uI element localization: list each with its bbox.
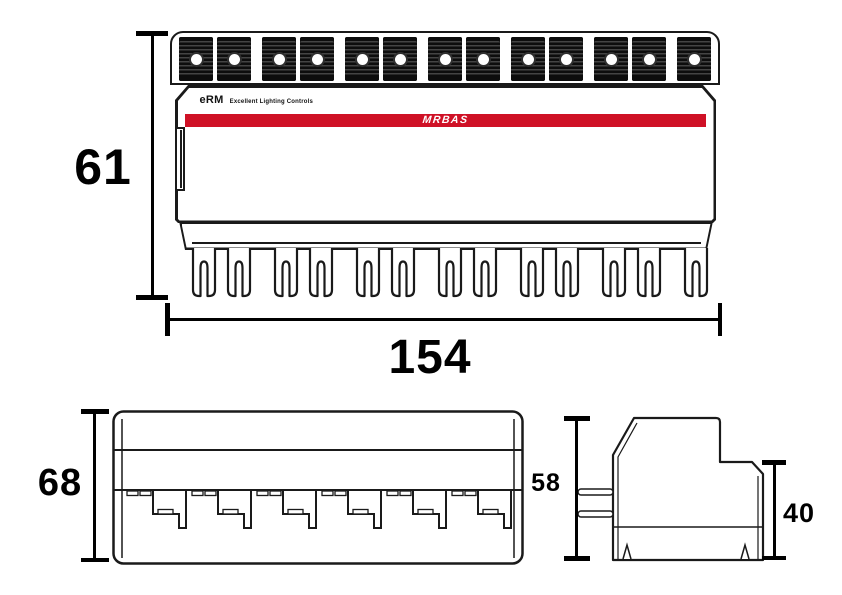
step-tab (127, 491, 138, 496)
dim-cap (165, 303, 170, 336)
terminal-block (677, 37, 711, 81)
lower-skirt-edge-line (192, 242, 701, 244)
fork-terminal-shape (193, 248, 215, 296)
terminal-block (262, 37, 296, 81)
fork-terminal-shape (310, 248, 332, 296)
dim-cap (718, 303, 723, 336)
fork-terminal (437, 248, 463, 298)
fork-terminal-shape (521, 248, 543, 296)
terminal-block (511, 37, 545, 81)
dim-cap (136, 295, 168, 300)
step-tab (192, 491, 203, 496)
dim-cap (564, 416, 590, 421)
dim-cap (762, 460, 786, 465)
screw-hole-icon (523, 54, 534, 65)
dim-cap (81, 409, 109, 414)
step-shelf-tab (353, 510, 368, 515)
step-tab (140, 491, 151, 496)
fork-terminal-shape (392, 248, 414, 296)
front-panel-face: eRM Excellent Lighting Controls MRBAS (178, 88, 714, 221)
connector-pin (578, 489, 613, 495)
fork-terminal (683, 248, 709, 298)
terminal-block (383, 37, 417, 81)
terminal-block (217, 37, 251, 81)
fork-terminal (519, 248, 545, 298)
fork-terminal (226, 248, 252, 298)
dim-cap (81, 558, 109, 563)
fork-terminal (390, 248, 416, 298)
dim-value-front-height: 61 (63, 142, 143, 192)
screw-hole-icon (274, 54, 285, 65)
screw-hole-icon (229, 54, 240, 65)
side-view-outline (613, 418, 763, 560)
fork-terminal (472, 248, 498, 298)
dim-cap (136, 31, 168, 36)
step-shelf-tab (158, 510, 173, 515)
terminal-block (345, 37, 379, 81)
screw-hole-icon (689, 54, 700, 65)
logo-text: MRBAS (184, 114, 706, 127)
fork-terminal (636, 248, 662, 298)
step-tab (465, 491, 476, 496)
step-tab (270, 491, 281, 496)
bottom-view-outline (114, 412, 523, 564)
brand-label: eRM (200, 94, 224, 106)
terminal-block (179, 37, 213, 81)
fork-terminal (554, 248, 580, 298)
dim-value-side-height: 58 (516, 471, 576, 496)
screw-hole-icon (644, 54, 655, 65)
step-tab (452, 491, 463, 496)
connector-pins (578, 489, 613, 517)
fork-terminal-shape (556, 248, 578, 296)
terminal-block (549, 37, 583, 81)
dim-line-vertical (151, 33, 154, 297)
fork-terminal-shape (228, 248, 250, 296)
fork-terminal (273, 248, 299, 298)
screw-hole-icon (357, 54, 368, 65)
side-view (576, 412, 771, 564)
step-tab (335, 491, 346, 496)
terminal-block (300, 37, 334, 81)
step-shelf-tab (483, 510, 498, 515)
fork-terminal (191, 248, 217, 298)
fork-terminal (601, 248, 627, 298)
brand-stripe: MRBAS (185, 114, 706, 127)
step-tab (257, 491, 268, 496)
lower-skirt (179, 221, 713, 250)
terminal-block (594, 37, 628, 81)
din-clip-slot-edge (180, 130, 182, 188)
connector-pin (578, 511, 613, 517)
lower-skirt-face (182, 224, 711, 248)
front-panel: eRM Excellent Lighting Controls MRBAS (175, 85, 716, 223)
step-tab (322, 491, 333, 496)
screw-hole-icon (395, 54, 406, 65)
fork-terminal-shape (474, 248, 496, 296)
brand-row: eRM Excellent Lighting Controls (200, 94, 314, 106)
step-tab (400, 491, 411, 496)
fork-terminal (308, 248, 334, 298)
terminal-block (632, 37, 666, 81)
step-tab (387, 491, 398, 496)
fork-terminal-shape (357, 248, 379, 296)
din-clip-slot (175, 127, 185, 191)
fork-terminal-shape (603, 248, 625, 296)
screw-hole-icon (478, 54, 489, 65)
fork-terminal-shape (638, 248, 660, 296)
dim-line-horizontal (166, 318, 720, 322)
fork-terminal-shape (275, 248, 297, 296)
dim-cap (564, 556, 590, 561)
dimension-drawing: eRM Excellent Lighting Controls MRBAS 61 (0, 0, 842, 595)
fork-terminal (355, 248, 381, 298)
step-shelf-tab (418, 510, 433, 515)
terminal-blocks-row (179, 37, 713, 81)
terminal-block (428, 37, 462, 81)
dim-value-side-step-height: 40 (769, 500, 829, 527)
dim-value-bottom-height: 68 (20, 464, 100, 502)
fork-terminal-shape (439, 248, 461, 296)
step-shelf-tab (288, 510, 303, 515)
fork-terminal-shape (685, 248, 707, 296)
dim-cap (762, 556, 786, 561)
terminal-block (466, 37, 500, 81)
fork-terminals-row (191, 248, 711, 298)
bottom-view (112, 410, 524, 566)
screw-hole-icon (561, 54, 572, 65)
tagline-label: Excellent Lighting Controls (230, 99, 313, 105)
step-tab (205, 491, 216, 496)
screw-hole-icon (606, 54, 617, 65)
dim-value-front-width: 154 (370, 334, 490, 382)
screw-hole-icon (440, 54, 451, 65)
step-shelf-tab (223, 510, 238, 515)
screw-hole-icon (312, 54, 323, 65)
screw-hole-icon (191, 54, 202, 65)
